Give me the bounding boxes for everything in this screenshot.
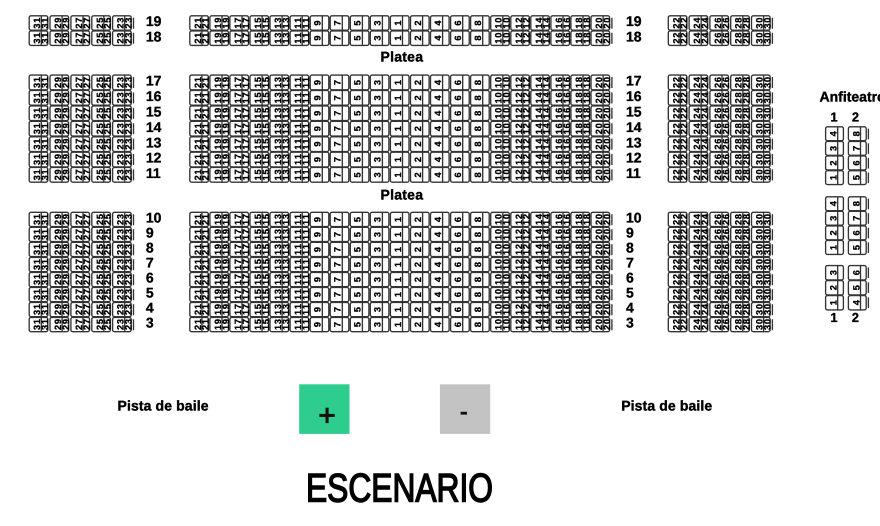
svg-text:7: 7 — [333, 111, 343, 116]
svg-text:13: 13 — [281, 229, 291, 240]
svg-text:13: 13 — [281, 154, 291, 165]
svg-text:17: 17 — [241, 18, 251, 29]
svg-text:3: 3 — [373, 217, 383, 222]
svg-text:6: 6 — [453, 292, 463, 297]
svg-text:10: 10 — [502, 108, 512, 119]
svg-text:28: 28 — [742, 139, 752, 150]
svg-text:2: 2 — [413, 80, 423, 85]
svg-text:6: 6 — [453, 172, 463, 177]
svg-text:23: 23 — [124, 229, 134, 240]
svg-text:26: 26 — [721, 169, 731, 180]
svg-text:6: 6 — [851, 270, 861, 275]
svg-text:6: 6 — [453, 262, 463, 267]
svg-text:17: 17 — [241, 154, 251, 165]
svg-text:20: 20 — [602, 319, 612, 330]
svg-text:9: 9 — [313, 292, 323, 297]
svg-text:29: 29 — [61, 108, 71, 119]
svg-text:20: 20 — [602, 244, 612, 255]
svg-text:18: 18 — [146, 28, 162, 44]
svg-text:30: 30 — [762, 259, 772, 270]
svg-text:20: 20 — [602, 18, 612, 29]
svg-text:31: 31 — [40, 154, 50, 165]
svg-text:3: 3 — [626, 315, 634, 331]
svg-text:9: 9 — [146, 225, 154, 241]
svg-text:25: 25 — [103, 108, 113, 119]
svg-text:31: 31 — [40, 229, 50, 240]
svg-text:21: 21 — [201, 319, 211, 330]
svg-text:14: 14 — [146, 119, 162, 135]
svg-text:4: 4 — [433, 35, 443, 41]
svg-text:31: 31 — [40, 139, 50, 150]
svg-text:29: 29 — [61, 18, 71, 29]
svg-text:2: 2 — [829, 160, 839, 165]
svg-text:26: 26 — [721, 108, 731, 119]
svg-text:22: 22 — [679, 304, 689, 315]
svg-text:30: 30 — [762, 123, 772, 134]
svg-text:11: 11 — [626, 165, 641, 181]
svg-text:29: 29 — [61, 319, 71, 330]
svg-text:14: 14 — [542, 107, 552, 119]
svg-text:20: 20 — [602, 304, 612, 315]
svg-text:7: 7 — [146, 255, 154, 271]
svg-text:7: 7 — [333, 277, 343, 282]
svg-text:31: 31 — [40, 33, 50, 44]
svg-text:9: 9 — [313, 217, 323, 222]
svg-text:8: 8 — [473, 307, 483, 312]
svg-text:11: 11 — [301, 244, 311, 255]
svg-text:12: 12 — [146, 150, 162, 166]
svg-text:7: 7 — [333, 322, 343, 327]
svg-text:21: 21 — [201, 108, 211, 119]
svg-text:21: 21 — [201, 214, 211, 225]
svg-text:8: 8 — [473, 111, 483, 116]
svg-text:3: 3 — [373, 111, 383, 116]
svg-text:11: 11 — [301, 18, 311, 29]
svg-text:1: 1 — [393, 247, 403, 252]
svg-text:24: 24 — [700, 92, 710, 104]
svg-text:27: 27 — [82, 92, 92, 103]
svg-text:2: 2 — [413, 111, 423, 116]
svg-text:12: 12 — [626, 150, 642, 166]
svg-text:25: 25 — [103, 289, 113, 300]
svg-text:31: 31 — [40, 123, 50, 134]
svg-text:8: 8 — [473, 172, 483, 177]
svg-text:30: 30 — [762, 33, 772, 44]
svg-text:14: 14 — [542, 169, 552, 181]
svg-text:6: 6 — [453, 21, 463, 26]
svg-text:30: 30 — [762, 154, 772, 165]
svg-text:11: 11 — [301, 154, 311, 165]
svg-text:13: 13 — [281, 319, 291, 330]
svg-text:ESCENARIO: ESCENARIO — [306, 466, 493, 510]
svg-text:4: 4 — [433, 94, 443, 100]
svg-text:30: 30 — [762, 214, 772, 225]
svg-text:3: 3 — [373, 36, 383, 41]
svg-text:5: 5 — [353, 21, 363, 26]
svg-text:2: 2 — [413, 262, 423, 267]
svg-text:18: 18 — [582, 214, 592, 225]
svg-text:10: 10 — [502, 319, 512, 330]
svg-text:24: 24 — [700, 318, 710, 330]
svg-text:11: 11 — [301, 123, 311, 134]
svg-text:17: 17 — [241, 108, 251, 119]
svg-text:27: 27 — [82, 169, 92, 180]
svg-text:2: 2 — [413, 307, 423, 312]
svg-text:10: 10 — [502, 92, 512, 103]
svg-text:29: 29 — [61, 92, 71, 103]
svg-text:24: 24 — [700, 213, 710, 225]
svg-text:13: 13 — [281, 77, 291, 88]
svg-text:26: 26 — [721, 214, 731, 225]
svg-text:10: 10 — [502, 259, 512, 270]
svg-text:2: 2 — [413, 157, 423, 162]
svg-text:26: 26 — [721, 18, 731, 29]
svg-text:21: 21 — [201, 169, 211, 180]
svg-text:23: 23 — [124, 289, 134, 300]
svg-text:8: 8 — [146, 240, 154, 256]
svg-text:2: 2 — [413, 36, 423, 41]
svg-text:11: 11 — [301, 259, 311, 270]
svg-text:27: 27 — [82, 304, 92, 315]
svg-text:8: 8 — [473, 292, 483, 297]
svg-text:1: 1 — [393, 307, 403, 312]
svg-text:9: 9 — [313, 157, 323, 162]
svg-text:24: 24 — [700, 273, 710, 285]
svg-text:17: 17 — [146, 73, 162, 89]
svg-text:24: 24 — [700, 288, 710, 300]
svg-text:20: 20 — [602, 154, 612, 165]
svg-text:28: 28 — [742, 229, 752, 240]
svg-text:22: 22 — [679, 289, 689, 300]
svg-text:17: 17 — [241, 259, 251, 270]
svg-text:24: 24 — [700, 243, 710, 255]
svg-text:27: 27 — [82, 259, 92, 270]
svg-text:1: 1 — [830, 110, 837, 125]
svg-text:10: 10 — [502, 229, 512, 240]
svg-text:3: 3 — [373, 21, 383, 26]
svg-text:8: 8 — [473, 80, 483, 85]
svg-text:21: 21 — [201, 123, 211, 134]
svg-text:18: 18 — [582, 92, 592, 103]
svg-text:6: 6 — [453, 80, 463, 85]
svg-text:31: 31 — [40, 304, 50, 315]
svg-text:18: 18 — [582, 289, 592, 300]
svg-text:14: 14 — [542, 273, 552, 285]
svg-text:20: 20 — [602, 259, 612, 270]
svg-text:17: 17 — [241, 289, 251, 300]
svg-text:9: 9 — [313, 142, 323, 147]
svg-text:28: 28 — [742, 18, 752, 29]
svg-text:1: 1 — [393, 232, 403, 237]
svg-text:18: 18 — [582, 18, 592, 29]
svg-text:29: 29 — [61, 304, 71, 315]
svg-text:23: 23 — [124, 274, 134, 285]
svg-text:24: 24 — [700, 228, 710, 240]
svg-text:24: 24 — [700, 76, 710, 88]
svg-text:19: 19 — [626, 13, 642, 29]
svg-text:21: 21 — [201, 77, 211, 88]
svg-text:24: 24 — [700, 138, 710, 150]
svg-text:18: 18 — [582, 259, 592, 270]
svg-text:31: 31 — [40, 92, 50, 103]
svg-text:20: 20 — [602, 229, 612, 240]
svg-text:25: 25 — [103, 244, 113, 255]
svg-text:9: 9 — [313, 126, 323, 131]
svg-text:31: 31 — [40, 214, 50, 225]
svg-text:27: 27 — [82, 77, 92, 88]
svg-text:11: 11 — [301, 77, 311, 88]
svg-text:28: 28 — [742, 169, 752, 180]
svg-text:14: 14 — [542, 303, 552, 315]
svg-text:20: 20 — [602, 139, 612, 150]
svg-text:13: 13 — [281, 244, 291, 255]
svg-text:18: 18 — [626, 28, 642, 44]
svg-text:6: 6 — [453, 95, 463, 100]
svg-text:25: 25 — [103, 154, 113, 165]
svg-text:Platea: Platea — [381, 187, 424, 203]
svg-text:22: 22 — [679, 274, 689, 285]
svg-text:18: 18 — [582, 123, 592, 134]
svg-text:2: 2 — [413, 95, 423, 100]
svg-text:22: 22 — [679, 92, 689, 103]
svg-text:25: 25 — [103, 123, 113, 134]
svg-text:30: 30 — [762, 244, 772, 255]
svg-text:8: 8 — [473, 262, 483, 267]
svg-text:4: 4 — [829, 200, 839, 206]
svg-text:5: 5 — [851, 285, 861, 290]
svg-text:5: 5 — [353, 292, 363, 297]
svg-text:20: 20 — [602, 123, 612, 134]
svg-text:25: 25 — [103, 274, 113, 285]
svg-text:7: 7 — [333, 292, 343, 297]
svg-text:17: 17 — [241, 319, 251, 330]
svg-text:2: 2 — [413, 232, 423, 237]
svg-text:17: 17 — [241, 33, 251, 44]
svg-text:4: 4 — [433, 276, 443, 282]
svg-text:29: 29 — [61, 169, 71, 180]
svg-text:31: 31 — [40, 77, 50, 88]
svg-text:11: 11 — [301, 274, 311, 285]
svg-text:22: 22 — [679, 154, 689, 165]
svg-text:4: 4 — [433, 246, 443, 252]
svg-text:29: 29 — [61, 123, 71, 134]
svg-text:6: 6 — [146, 270, 154, 286]
svg-text:17: 17 — [241, 77, 251, 88]
svg-text:31: 31 — [40, 259, 50, 270]
svg-text:29: 29 — [61, 77, 71, 88]
svg-text:7: 7 — [333, 142, 343, 147]
svg-text:10: 10 — [502, 139, 512, 150]
svg-text:7: 7 — [333, 217, 343, 222]
svg-text:26: 26 — [721, 229, 731, 240]
svg-text:2: 2 — [413, 217, 423, 222]
svg-text:3: 3 — [829, 216, 839, 221]
svg-text:4: 4 — [433, 141, 443, 147]
svg-text:1: 1 — [829, 300, 839, 305]
svg-text:1: 1 — [829, 175, 839, 180]
svg-text:27: 27 — [82, 108, 92, 119]
svg-text:22: 22 — [679, 229, 689, 240]
svg-text:6: 6 — [453, 111, 463, 116]
svg-text:24: 24 — [700, 258, 710, 270]
svg-text:22: 22 — [679, 259, 689, 270]
svg-text:2: 2 — [413, 247, 423, 252]
svg-text:20: 20 — [602, 77, 612, 88]
svg-text:Pista de baile: Pista de baile — [118, 397, 209, 413]
svg-text:3: 3 — [373, 142, 383, 147]
svg-text:3: 3 — [373, 247, 383, 252]
svg-text:8: 8 — [473, 157, 483, 162]
svg-text:28: 28 — [742, 304, 752, 315]
svg-text:9: 9 — [313, 36, 323, 41]
svg-text:3: 3 — [373, 277, 383, 282]
svg-text:17: 17 — [241, 244, 251, 255]
svg-text:13: 13 — [626, 134, 642, 150]
svg-text:11: 11 — [301, 108, 311, 119]
svg-text:4: 4 — [433, 110, 443, 116]
svg-text:9: 9 — [313, 95, 323, 100]
svg-text:3: 3 — [373, 322, 383, 327]
svg-text:1: 1 — [830, 310, 837, 325]
svg-text:28: 28 — [742, 274, 752, 285]
svg-text:29: 29 — [61, 214, 71, 225]
svg-text:6: 6 — [453, 142, 463, 147]
svg-text:23: 23 — [124, 139, 134, 150]
svg-text:17: 17 — [241, 139, 251, 150]
svg-text:8: 8 — [473, 126, 483, 131]
svg-text:3: 3 — [373, 95, 383, 100]
svg-text:11: 11 — [301, 304, 311, 315]
svg-text:25: 25 — [103, 33, 113, 44]
svg-text:13: 13 — [281, 123, 291, 134]
svg-text:14: 14 — [542, 92, 552, 104]
svg-text:25: 25 — [103, 304, 113, 315]
svg-text:3: 3 — [373, 292, 383, 297]
svg-text:10: 10 — [502, 304, 512, 315]
svg-text:10: 10 — [502, 33, 512, 44]
svg-text:6: 6 — [453, 247, 463, 252]
svg-text:21: 21 — [201, 18, 211, 29]
svg-text:25: 25 — [103, 319, 113, 330]
svg-text:1: 1 — [393, 262, 403, 267]
svg-text:5: 5 — [146, 285, 154, 301]
svg-text:26: 26 — [721, 274, 731, 285]
svg-text:3: 3 — [373, 262, 383, 267]
svg-text:13: 13 — [281, 108, 291, 119]
svg-text:14: 14 — [626, 119, 642, 135]
svg-text:9: 9 — [313, 172, 323, 177]
svg-text:7: 7 — [626, 255, 634, 271]
svg-text:26: 26 — [721, 92, 731, 103]
svg-text:9: 9 — [313, 21, 323, 26]
svg-text:1: 1 — [393, 111, 403, 116]
svg-text:23: 23 — [124, 33, 134, 44]
svg-text:28: 28 — [742, 123, 752, 134]
svg-text:25: 25 — [103, 229, 113, 240]
svg-text:14: 14 — [542, 138, 552, 150]
svg-text:10: 10 — [502, 214, 512, 225]
svg-text:4: 4 — [433, 171, 443, 177]
svg-text:1: 1 — [393, 322, 403, 327]
svg-text:23: 23 — [124, 169, 134, 180]
svg-text:14: 14 — [542, 122, 552, 134]
svg-text:10: 10 — [502, 289, 512, 300]
svg-text:18: 18 — [582, 154, 592, 165]
svg-text:21: 21 — [201, 289, 211, 300]
svg-text:28: 28 — [742, 108, 752, 119]
svg-text:6: 6 — [453, 217, 463, 222]
svg-text:2: 2 — [829, 230, 839, 235]
svg-text:5: 5 — [353, 95, 363, 100]
svg-text:8: 8 — [473, 217, 483, 222]
svg-text:23: 23 — [124, 214, 134, 225]
svg-text:8: 8 — [473, 232, 483, 237]
svg-text:14: 14 — [542, 243, 552, 255]
svg-text:6: 6 — [453, 232, 463, 237]
svg-text:30: 30 — [762, 229, 772, 240]
svg-text:28: 28 — [742, 244, 752, 255]
svg-text:7: 7 — [333, 247, 343, 252]
svg-text:17: 17 — [241, 92, 251, 103]
svg-text:17: 17 — [241, 274, 251, 285]
svg-text:10: 10 — [502, 123, 512, 134]
svg-text:2: 2 — [852, 310, 859, 325]
svg-text:21: 21 — [201, 92, 211, 103]
svg-text:17: 17 — [241, 214, 251, 225]
svg-text:5: 5 — [353, 80, 363, 85]
svg-text:30: 30 — [762, 139, 772, 150]
svg-text:2: 2 — [829, 285, 839, 290]
svg-text:9: 9 — [313, 262, 323, 267]
svg-text:10: 10 — [502, 244, 512, 255]
svg-text:27: 27 — [82, 229, 92, 240]
svg-text:18: 18 — [582, 169, 592, 180]
svg-text:30: 30 — [762, 108, 772, 119]
svg-text:3: 3 — [373, 157, 383, 162]
svg-text:20: 20 — [602, 289, 612, 300]
svg-text:25: 25 — [103, 169, 113, 180]
svg-text:23: 23 — [124, 123, 134, 134]
svg-text:27: 27 — [82, 139, 92, 150]
svg-text:9: 9 — [313, 322, 323, 327]
svg-text:29: 29 — [61, 289, 71, 300]
svg-text:27: 27 — [82, 18, 92, 29]
svg-text:1: 1 — [393, 157, 403, 162]
svg-text:11: 11 — [301, 289, 311, 300]
svg-text:24: 24 — [700, 107, 710, 119]
svg-text:6: 6 — [453, 126, 463, 131]
svg-text:19: 19 — [146, 13, 162, 29]
svg-text:28: 28 — [742, 33, 752, 44]
svg-text:15: 15 — [626, 104, 642, 120]
svg-text:4: 4 — [433, 156, 443, 162]
svg-text:30: 30 — [762, 319, 772, 330]
svg-text:26: 26 — [721, 304, 731, 315]
svg-text:25: 25 — [103, 18, 113, 29]
svg-text:6: 6 — [453, 157, 463, 162]
svg-text:26: 26 — [721, 154, 731, 165]
svg-text:3: 3 — [829, 146, 839, 151]
svg-text:29: 29 — [61, 154, 71, 165]
svg-text:22: 22 — [679, 169, 689, 180]
svg-text:6: 6 — [453, 36, 463, 41]
svg-text:26: 26 — [721, 139, 731, 150]
svg-text:18: 18 — [582, 319, 592, 330]
svg-text:Platea: Platea — [381, 48, 424, 64]
svg-text:14: 14 — [542, 288, 552, 300]
svg-text:7: 7 — [851, 146, 861, 151]
svg-text:22: 22 — [679, 244, 689, 255]
